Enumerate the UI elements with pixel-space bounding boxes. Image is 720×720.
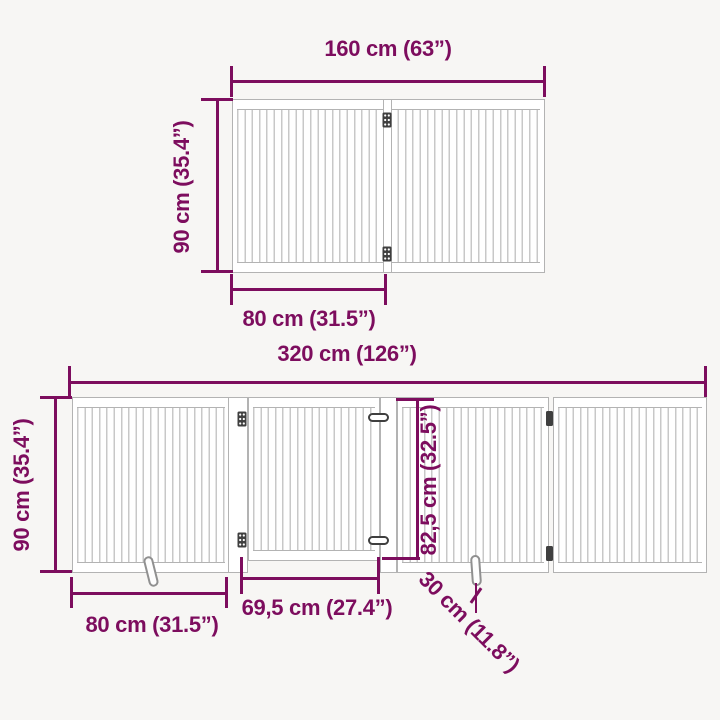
panel-slats [558,407,702,563]
door-latch-post [380,397,397,573]
bottom-gate-height-label: 90 cm (35.4”) [9,385,35,585]
top-panel-dim-tick-right [384,274,387,305]
top-width-dim-tick-left [230,66,233,97]
walk-through-door [248,397,380,561]
hinge-icon [546,411,553,426]
bottom-height-dim-tick-top [40,396,72,399]
hinge-icon [237,411,247,427]
top-height-dim-tick-top [201,98,233,101]
top-gate-drawing [232,99,545,273]
door-width-dim-line [242,577,380,580]
hinge-icon [237,532,247,548]
bottom-height-dim-line [54,397,57,573]
top-panel-dim-line [232,288,386,291]
top-width-dim-line [232,80,545,83]
latch-icon [368,413,389,422]
door-height-label: 82,5 cm (32.5”) [416,380,442,580]
bottom-panel-dim-tick-left [70,577,73,608]
bottom-height-dim-tick-bottom [40,570,72,573]
door-width-label: 69,5 cm (27.4”) [167,595,467,621]
bottom-total-dim-tick-left [68,366,71,398]
top-panel-dim-tick-left [230,274,233,305]
hinge-icon [382,112,392,128]
bottom-gate-drawing [72,397,707,573]
top-gate-width-label: 160 cm (63”) [238,36,538,62]
door-width-dim-tick-right [377,557,380,594]
bottom-total-dim-tick-right [704,366,707,398]
hinge-icon [546,546,553,561]
panel-slats [77,407,225,563]
bottom-gate-total-width-label: 320 cm (126”) [197,341,497,367]
top-width-dim-tick-right [543,66,546,97]
support-foot-icon [470,555,482,587]
top-height-dim-line [216,99,219,273]
bottom-gate-panel-4 [553,397,707,573]
bottom-gate-panel-1 [72,397,230,573]
door-width-dim-tick-left [240,557,243,594]
door-slats [253,407,375,551]
hinge-icon [382,246,392,262]
top-height-dim-tick-bottom [201,270,233,273]
top-gate-panel-width-label: 80 cm (31.5”) [159,306,459,332]
dimension-diagram: 160 cm (63”) 90 cm (35.4”) 80 cm (31.5”)… [0,0,720,720]
latch-icon [368,536,389,545]
top-gate-height-label: 90 cm (35.4”) [169,87,195,287]
bottom-total-dim-line [70,381,707,384]
